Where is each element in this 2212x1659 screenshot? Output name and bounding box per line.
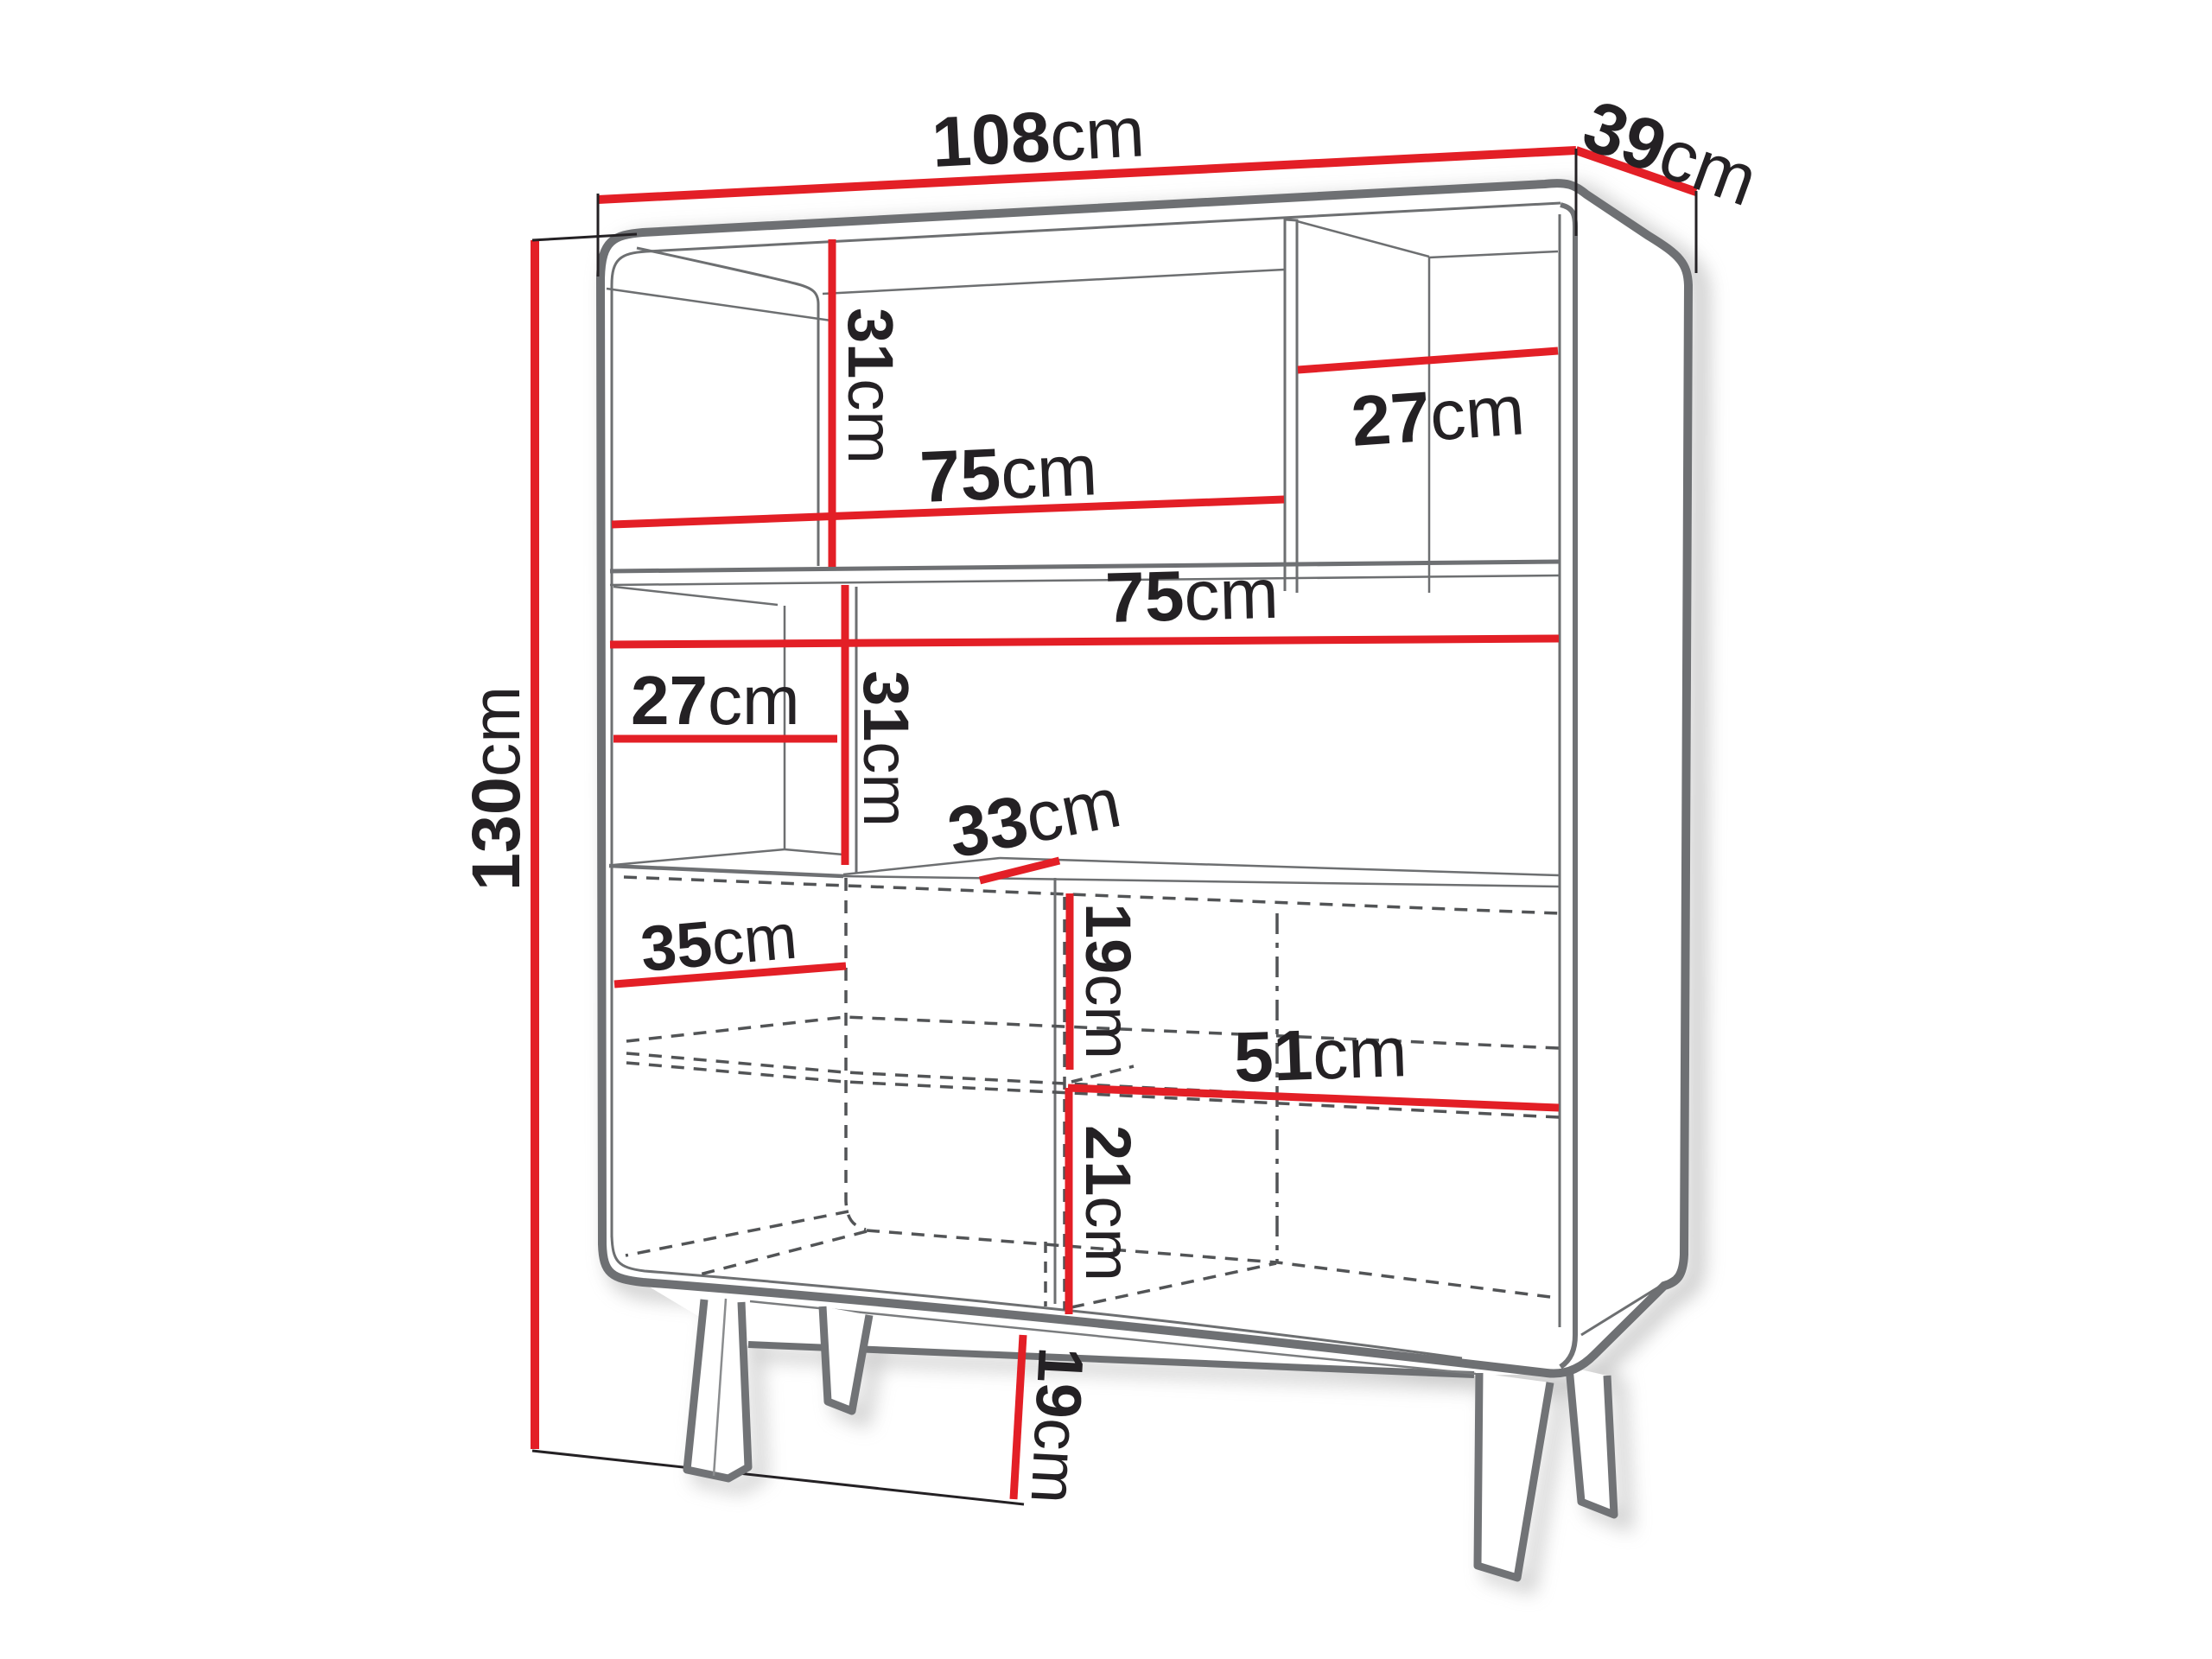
svg-text:51cm: 51cm <box>1232 1013 1408 1097</box>
svg-text:31cm: 31cm <box>835 308 906 464</box>
svg-text:21cm: 21cm <box>1072 1125 1144 1281</box>
svg-text:19cm: 19cm <box>1018 1345 1097 1505</box>
svg-text:75cm: 75cm <box>918 429 1099 518</box>
svg-text:130cm: 130cm <box>457 686 534 891</box>
svg-text:19cm: 19cm <box>1072 903 1144 1059</box>
svg-text:35cm: 35cm <box>638 899 800 984</box>
svg-text:31cm: 31cm <box>850 671 922 827</box>
svg-text:27cm: 27cm <box>1349 371 1527 461</box>
svg-text:108cm: 108cm <box>930 92 1147 182</box>
svg-text:75cm: 75cm <box>1104 555 1280 638</box>
svg-text:27cm: 27cm <box>631 662 800 739</box>
